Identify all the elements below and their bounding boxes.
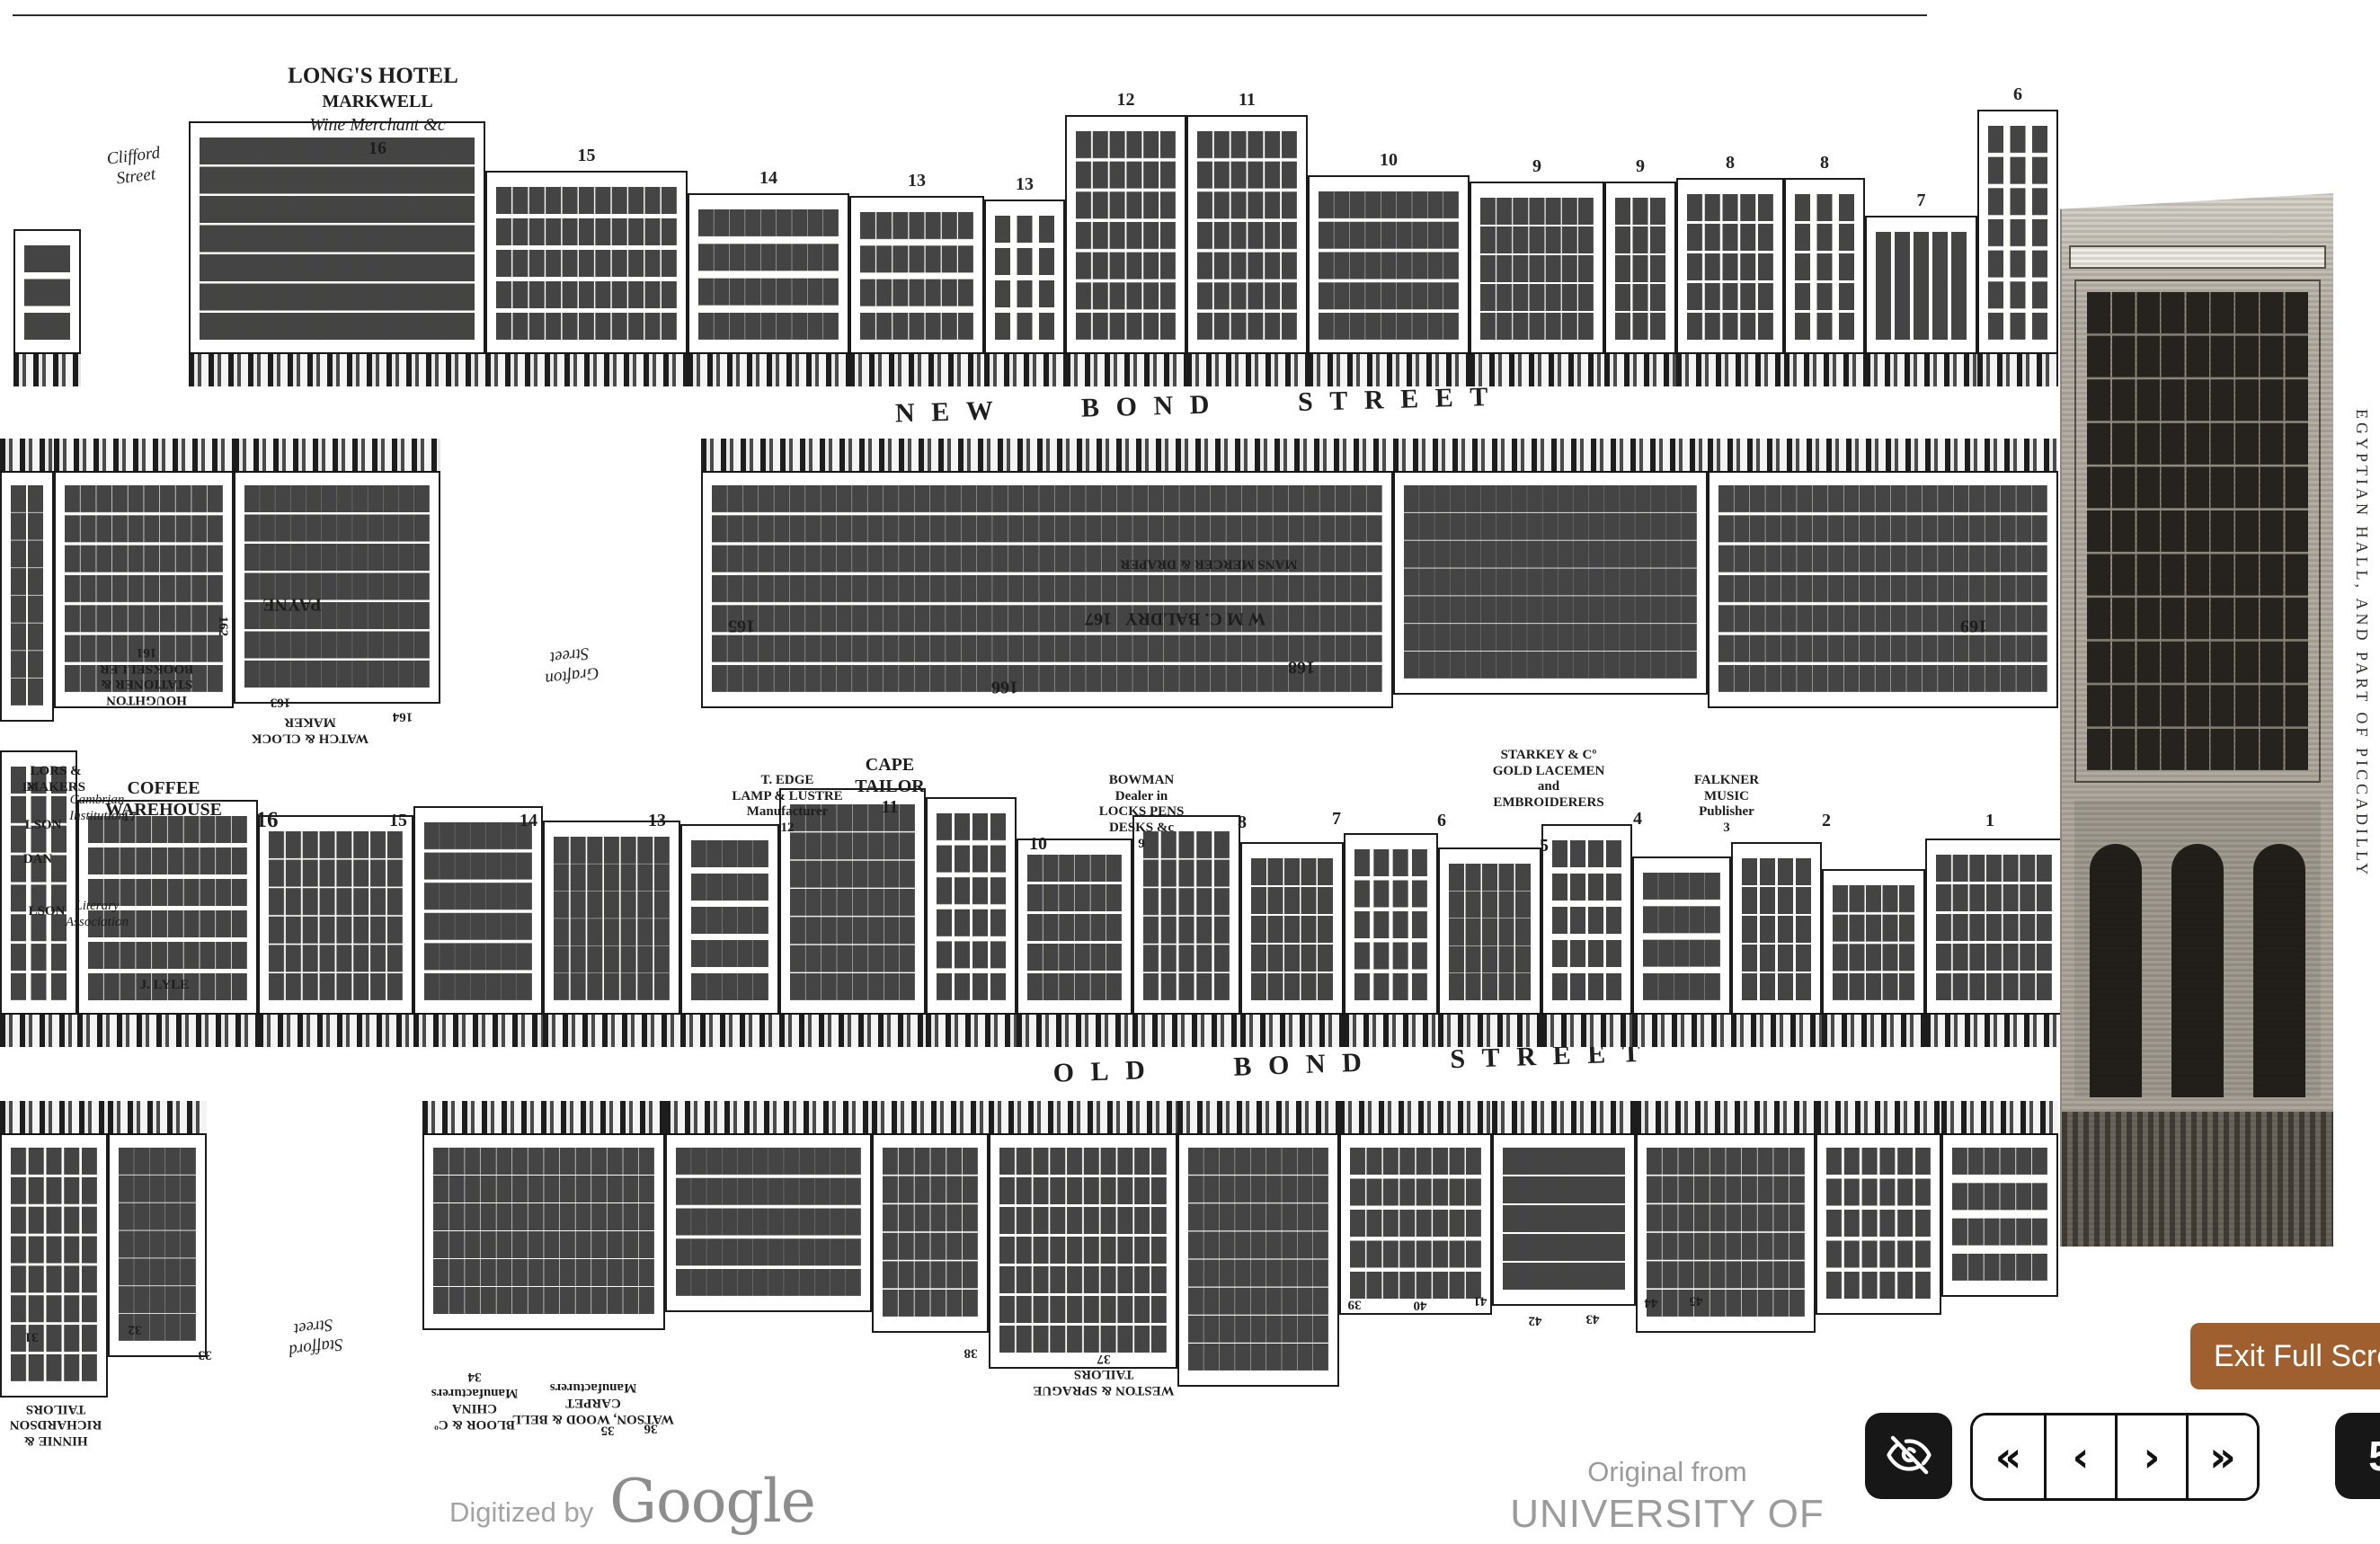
street-gap: Stafford Street xyxy=(207,1101,422,1394)
house-number: 8 xyxy=(1678,153,1782,173)
building xyxy=(108,1101,207,1357)
building xyxy=(543,821,680,1047)
facade-cornice xyxy=(2069,245,2326,269)
street-band-label: NEW BOND STREET xyxy=(782,378,1619,432)
arch xyxy=(2253,844,2305,1097)
engraving-label: 16 xyxy=(369,138,386,160)
engraving-label: HOUGHTON STATIONER & BOOKSELLER 161 xyxy=(100,643,193,707)
engraving-label: 167 xyxy=(1085,608,1112,629)
building xyxy=(422,1101,665,1330)
building xyxy=(872,1101,989,1333)
previous-page-button[interactable]: ‹ xyxy=(2044,1415,2115,1498)
engraving-label: 16 xyxy=(256,807,279,834)
building xyxy=(1393,439,1708,695)
engraving-plate: NEW BOND STREETOLD BOND STREETClifford S… xyxy=(0,0,2380,1544)
digitized-by-text: Digitized by xyxy=(449,1496,593,1529)
engraving-label: 39 xyxy=(1348,1296,1362,1312)
building xyxy=(1541,824,1632,1047)
building xyxy=(1731,842,1822,1047)
building xyxy=(0,1101,108,1398)
building: 15 xyxy=(485,171,688,386)
building: 8 xyxy=(1676,178,1784,386)
next-page-button[interactable]: › xyxy=(2115,1415,2186,1498)
house-number: 14 xyxy=(689,168,848,189)
engraving-label: 38 xyxy=(964,1344,978,1361)
engraving-label: 15 xyxy=(389,811,407,832)
building xyxy=(0,439,54,722)
house-number: 9 xyxy=(1471,156,1603,177)
engraving-label: 168 xyxy=(1288,656,1315,678)
engraving-label: WESTON & SPRAGUE TAILORS 37 xyxy=(1033,1350,1174,1398)
engraving-label: 4 xyxy=(1633,809,1642,830)
engraving-label: STARKEY & Cº GOLD LACEMEN and EMBROIDERE… xyxy=(1493,748,1605,812)
engraving-label: 164 xyxy=(393,708,413,724)
arch xyxy=(2171,844,2224,1097)
engraving-label: MARKWELL xyxy=(322,92,432,113)
engraving-label: 17 xyxy=(123,810,137,826)
building: 10 xyxy=(1308,175,1470,386)
engraving-label: 45 xyxy=(1690,1292,1703,1309)
building xyxy=(1816,1101,1941,1315)
street-name-label: Grafton Street xyxy=(541,642,599,689)
engraving-label: 10 xyxy=(1029,834,1047,856)
engraving-label: 14 xyxy=(520,811,537,832)
facade-row: Grafton Street xyxy=(0,439,2058,735)
building xyxy=(1177,1101,1339,1387)
engraving-label: 44 xyxy=(1645,1294,1658,1310)
house-number: 13 xyxy=(986,174,1063,195)
engraving-label: 6 xyxy=(1437,811,1446,832)
google-watermark: Digitized by Google xyxy=(449,1467,815,1536)
engraving-label: 13 xyxy=(648,811,666,832)
building: 9 xyxy=(1604,182,1676,386)
house-number: 6 xyxy=(1979,84,2056,105)
engraving-label: DAN xyxy=(23,852,53,868)
building xyxy=(1636,1101,1816,1333)
engraving-label: 31 xyxy=(25,1328,39,1344)
engraving-label: HINNIE & RICHARDSON TAILORS xyxy=(10,1400,102,1448)
building: 6 xyxy=(1977,110,2058,386)
building xyxy=(1438,847,1541,1047)
engraving-label: J. LYLE xyxy=(140,978,189,994)
engraving-label: PAYNE xyxy=(262,593,322,615)
engraving-label: Cambrian Institution xyxy=(69,793,125,824)
building xyxy=(1339,1101,1492,1315)
building xyxy=(1822,869,1925,1047)
building xyxy=(1708,439,2058,708)
engraving-label: CAPE TAILOR 11 xyxy=(855,755,924,819)
original-from-text: Original from xyxy=(1416,1456,1919,1488)
house-number: 7 xyxy=(1867,191,1976,211)
street-gap: Grafton Street xyxy=(440,439,701,723)
engraving-label: 36 xyxy=(644,1420,658,1436)
engraving-label: T. EDGE LAMP & LUSTRE Manufacturer 12 xyxy=(732,773,842,837)
building: 13 xyxy=(849,196,984,386)
house-number: 8 xyxy=(1786,153,1863,173)
building xyxy=(1941,1101,2058,1297)
engraving-label: 18 xyxy=(22,780,35,796)
building: 9 xyxy=(1470,182,1604,386)
engraving-label: 32 xyxy=(129,1321,142,1337)
engraving-label: 8 xyxy=(1238,812,1247,834)
building xyxy=(1492,1101,1636,1306)
building xyxy=(926,797,1017,1047)
engraving-label: W M C. BALDRY xyxy=(1125,608,1266,629)
building xyxy=(1344,833,1438,1047)
facade-row: Stafford Street xyxy=(0,1101,2058,1406)
building xyxy=(665,1101,872,1312)
engraving-label: 43 xyxy=(1586,1310,1600,1327)
facade-windows xyxy=(2074,280,2321,783)
engraving-label: 5 xyxy=(1540,836,1549,857)
engraving-label: BOWMAN Dealer in LOCKS PENS DESKS &c 9 xyxy=(1099,773,1185,852)
house-number: 11 xyxy=(1188,90,1306,111)
building xyxy=(234,439,440,704)
building xyxy=(1017,839,1132,1047)
house-number: 9 xyxy=(1606,156,1674,177)
engraving-label: WATCH & CLOCK MAKER xyxy=(252,714,369,745)
engraving-label: 7 xyxy=(1332,809,1341,830)
google-logo: Google xyxy=(609,1467,815,1536)
engraving-label: FALKNER MUSIC Publisher 3 xyxy=(1694,773,1759,837)
engraving-label: MANS MERCER & DRAPER xyxy=(1120,555,1297,572)
clipped-control-button[interactable]: 5 xyxy=(2335,1413,2380,1499)
engraving-label: 165 xyxy=(728,615,755,636)
engraving-label: 33 xyxy=(199,1346,212,1362)
engraving-label: Literary Association xyxy=(66,899,129,930)
exit-fullscreen-button[interactable]: Exit Full Screen xyxy=(2190,1323,2380,1389)
engraving-label: 42 xyxy=(1529,1312,1542,1328)
building xyxy=(413,806,543,1047)
institution-name: UNIVERSITY OF MICHIGAN xyxy=(1416,1492,1919,1544)
building xyxy=(989,1101,1177,1369)
building xyxy=(1925,839,2063,1047)
building xyxy=(13,229,81,386)
engraving-label: 162 xyxy=(214,617,230,637)
building xyxy=(258,815,413,1047)
building: 12 xyxy=(1065,115,1186,386)
plate-side-caption: EGYPTIAN HALL, AND PART OF PICCADILLY xyxy=(2335,409,2371,1002)
street-gap: Clifford Street xyxy=(81,97,189,386)
building: 11 xyxy=(1186,115,1308,386)
building: 13 xyxy=(984,200,1065,386)
building xyxy=(1632,856,1731,1047)
house-number: 15 xyxy=(487,146,686,166)
last-page-button[interactable]: » xyxy=(2186,1415,2257,1498)
facade-base xyxy=(2062,1112,2333,1247)
engraving-label: LSON xyxy=(29,904,66,920)
building xyxy=(189,121,485,386)
engraving-label: 1 xyxy=(1985,811,1994,832)
engraving-label: 41 xyxy=(1474,1292,1487,1309)
hide-interface-button[interactable] xyxy=(1865,1413,1952,1499)
building: 7 xyxy=(1865,216,1977,386)
source-attribution: Original from UNIVERSITY OF MICHIGAN xyxy=(1416,1456,1919,1544)
house-number: 10 xyxy=(1310,150,1468,171)
street-name-label: Stafford Street xyxy=(285,1312,344,1360)
engraving-label: 163 xyxy=(271,694,291,710)
fullscreen-book-viewer: NEW BOND STREETOLD BOND STREETClifford S… xyxy=(0,0,2380,1544)
engraving-label: LONG'S HOTEL xyxy=(288,63,458,90)
facade-arcade xyxy=(2074,801,2321,1097)
page-edge-line xyxy=(13,14,1927,16)
engraving-label: 166 xyxy=(991,676,1018,697)
arch xyxy=(2090,844,2142,1097)
engraving-label: 35 xyxy=(601,1422,615,1438)
engraving-label: Wine Merchant &c xyxy=(309,115,445,137)
engraving-label: 2 xyxy=(1822,811,1831,832)
engraving-label: BLOOR & Cº CHINA Manufacturers 34 xyxy=(431,1368,518,1432)
street-name-label: Clifford Street xyxy=(106,144,164,191)
first-page-button[interactable]: « xyxy=(1973,1415,2044,1498)
egyptian-hall-engraving xyxy=(2060,193,2333,1247)
house-number: 12 xyxy=(1067,90,1185,111)
house-number: 13 xyxy=(851,171,982,191)
building xyxy=(680,824,779,1047)
engraving-label: 169 xyxy=(1960,615,1987,636)
building: 8 xyxy=(1784,178,1865,386)
building: 14 xyxy=(688,193,849,386)
engraving-label: LORS & MAKERS xyxy=(26,764,85,795)
page-navigation: « ‹ › » xyxy=(1970,1413,2260,1501)
engraving-label: LSON xyxy=(25,818,62,834)
engraving-label: 40 xyxy=(1414,1297,1427,1313)
eye-off-icon xyxy=(1885,1431,1933,1482)
building xyxy=(1240,842,1344,1047)
